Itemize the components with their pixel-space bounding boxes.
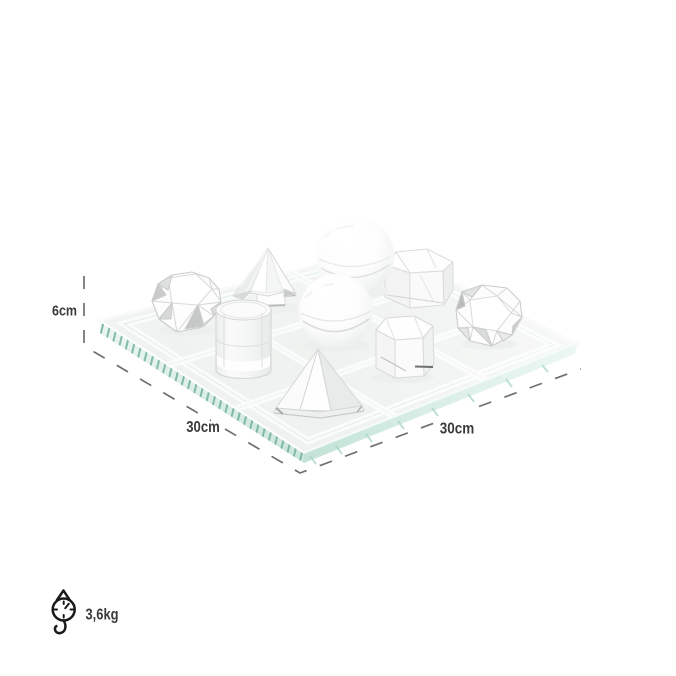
svg-text:3,6kg: 3,6kg: [86, 607, 119, 624]
svg-text:30cm: 30cm: [440, 421, 475, 438]
svg-text:30cm: 30cm: [186, 419, 220, 436]
svg-text:6cm: 6cm: [52, 303, 77, 320]
